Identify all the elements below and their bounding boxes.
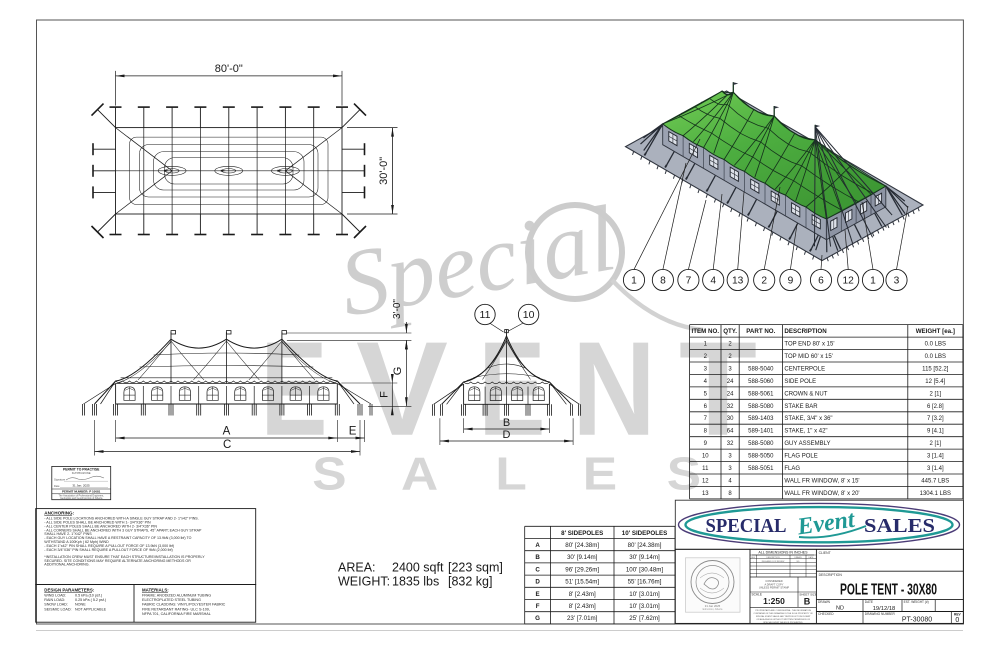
svg-text:0.5 kPa (10 psf.): 0.5 kPa (10 psf.)	[75, 594, 102, 598]
svg-text:0.25 kPa ( 5.2 psf.): 0.25 kPa ( 5.2 psf.)	[75, 598, 106, 602]
svg-text:Edmonton, Alberta: Edmonton, Alberta	[703, 608, 723, 611]
svg-text:DRAWN: DRAWN	[818, 600, 831, 604]
svg-text:SPECIAL EVENT SALES IS PROHIBI: SPECIAL EVENT SALES IS PROHIBITED.	[763, 621, 803, 624]
svg-text:PART NO.: PART NO.	[746, 328, 775, 335]
svg-text:G: G	[392, 367, 404, 376]
svg-text:DESCRIPTION: DESCRIPTION	[819, 573, 843, 577]
svg-text:115 [52.2]: 115 [52.2]	[922, 366, 949, 372]
svg-text:CENTERPOLE: CENTERPOLE	[784, 366, 825, 372]
svg-text:Signature: Signature	[54, 478, 66, 482]
svg-text:6: 6	[818, 276, 824, 287]
svg-text:ADDITIONAL ANCHORING.: ADDITIONAL ANCHORING.	[44, 563, 89, 567]
svg-text:3 [1.4]: 3 [1.4]	[927, 466, 944, 472]
svg-text:SALES: SALES	[864, 516, 935, 537]
svg-text:ND: ND	[836, 606, 844, 612]
svg-text:WIND LOAD:: WIND LOAD:	[44, 594, 66, 598]
svg-text:12: 12	[843, 276, 855, 287]
svg-text:SIDE POLE: SIDE POLE	[784, 379, 816, 385]
svg-text:30: 30	[727, 416, 734, 422]
svg-text:1304.1 LBS: 1304.1 LBS	[920, 491, 951, 497]
svg-text:8: 8	[660, 276, 666, 287]
svg-text:588-5050: 588-5050	[748, 454, 774, 460]
svg-text:32: 32	[727, 441, 734, 447]
svg-text:ITEM NO.: ITEM NO.	[692, 328, 720, 335]
svg-text:100' [30.48m]: 100' [30.48m]	[626, 566, 664, 573]
svg-text:NONE: NONE	[75, 603, 86, 607]
svg-text:V: V	[356, 315, 448, 464]
svg-text:0.0 LBS: 0.0 LBS	[925, 354, 946, 360]
svg-text:8' SIDEPOLES: 8' SIDEPOLES	[561, 530, 603, 537]
svg-text:10: 10	[523, 309, 535, 321]
svg-text:S: S	[312, 449, 346, 500]
svg-text:N: N	[572, 315, 656, 464]
svg-text:GUY ASSEMBLY: GUY ASSEMBLY	[784, 441, 830, 447]
svg-text:RAIN LOAD:: RAIN LOAD:	[44, 598, 65, 602]
svg-text:30'-0": 30'-0"	[378, 157, 390, 185]
svg-text:13: 13	[732, 276, 744, 287]
svg-text:CHECKED: CHECKED	[818, 612, 834, 616]
svg-text:STAKE, 3/4" x 36": STAKE, 3/4" x 36"	[784, 416, 832, 422]
svg-text:DESCRIPTION: DESCRIPTION	[784, 328, 827, 335]
svg-text:51' [15.54m]: 51' [15.54m]	[565, 579, 599, 586]
svg-text:E: E	[583, 449, 617, 500]
svg-text:NFPA 701, CALIFORNIA FIRE MARS: NFPA 701, CALIFORNIA FIRE MARSHAL	[142, 612, 211, 616]
svg-text:10: 10	[702, 454, 709, 460]
svg-text:G: G	[535, 615, 540, 622]
svg-text:80' [24.38m]: 80' [24.38m]	[565, 542, 599, 549]
svg-text:10' SIDEPOLES: 10' SIDEPOLES	[622, 530, 668, 537]
svg-text:CLIENT: CLIENT	[819, 551, 831, 555]
svg-text:WEIGHT:: WEIGHT:	[338, 575, 390, 589]
svg-text:8' [2.43m]: 8' [2.43m]	[569, 603, 596, 610]
svg-text:23' [7.01m]: 23' [7.01m]	[567, 615, 598, 622]
svg-text:PERMIT NUMBER: P 10081: PERMIT NUMBER: P 10081	[62, 490, 101, 494]
svg-text:FLAG: FLAG	[784, 466, 800, 472]
svg-text:2: 2	[761, 276, 767, 287]
svg-text:ELECTROPLATED STEEL TUBING: ELECTROPLATED STEEL TUBING	[142, 598, 201, 602]
svg-text:WALL FR WINDOW, 8' x 15': WALL FR WINDOW, 8' x 15'	[784, 479, 859, 485]
svg-text:A: A	[535, 542, 540, 549]
svg-text:19/12/18: 19/12/18	[873, 606, 896, 612]
svg-text:3 [1.4]: 3 [1.4]	[927, 454, 944, 460]
svg-text:3: 3	[894, 276, 900, 287]
svg-text:1: 1	[870, 276, 876, 287]
svg-text:FABRIC CLADDING: VINYL/POLYEST: FABRIC CLADDING: VINYL/POLYESTER FABRIC	[142, 603, 226, 607]
svg-text:C: C	[223, 439, 231, 451]
svg-text:1: 1	[631, 276, 637, 287]
svg-text:12: 12	[702, 479, 709, 485]
svg-text:STAKE, 1" x 42": STAKE, 1" x 42"	[784, 429, 827, 435]
svg-text:SNOW LOAD:: SNOW LOAD:	[44, 603, 68, 607]
svg-text:31 Jan. 2025: 31 Jan. 2025	[72, 484, 90, 488]
svg-text:588-5051: 588-5051	[748, 466, 774, 472]
svg-text:Date: Date	[54, 484, 60, 488]
svg-text:[223 sqm]: [223 sqm]	[448, 561, 503, 575]
svg-text:588-5060: 588-5060	[748, 379, 774, 385]
svg-text:A: A	[223, 426, 231, 438]
svg-text:9: 9	[788, 276, 794, 287]
svg-text:DRAWN: DRAWN	[794, 556, 802, 559]
svg-text:CONTAINED IN THIS DRAWING IS T: CONTAINED IN THIS DRAWING IS THE SOLE PR…	[754, 612, 814, 615]
svg-text:D: D	[503, 429, 511, 441]
svg-text:80' [24.38m]: 80' [24.38m]	[628, 542, 662, 549]
svg-text:588-5080: 588-5080	[748, 441, 774, 447]
svg-text:4: 4	[710, 276, 716, 287]
svg-text:KLTP8IUZONE: KLTP8IUZONE	[72, 471, 91, 475]
svg-text:E: E	[349, 426, 357, 438]
svg-text:WALL FR WINDOW, 8' x 20': WALL FR WINDOW, 8' x 20'	[784, 491, 859, 497]
svg-text:588-5061: 588-5061	[748, 391, 774, 397]
svg-text:B: B	[503, 417, 510, 429]
svg-text:L: L	[495, 449, 526, 500]
svg-text:RELEASED FOR REVIEW: RELEASED FOR REVIEW	[762, 560, 785, 563]
svg-text:80'-0": 80'-0"	[215, 63, 243, 75]
svg-text:7: 7	[686, 276, 692, 287]
svg-text:A: A	[401, 449, 438, 500]
svg-text:2400 sqft: 2400 sqft	[392, 561, 444, 575]
svg-text:FIRE RETARDANT RATING- ULC S-1: FIRE RETARDANT RATING- ULC S-109,	[142, 607, 210, 611]
svg-text:30' [9.14m]: 30' [9.14m]	[567, 554, 598, 561]
svg-text:0: 0	[955, 617, 959, 624]
svg-text:B: B	[535, 554, 540, 561]
svg-text:REV: REV	[954, 612, 961, 616]
svg-text:TOP END 80' x 15': TOP END 80' x 15'	[784, 342, 834, 348]
svg-text:TOP MID 60' x 15': TOP MID 60' x 15'	[784, 354, 832, 360]
svg-text:10' [3.01m]: 10' [3.01m]	[629, 591, 660, 598]
svg-text:12 [5.4]: 12 [5.4]	[925, 379, 945, 385]
svg-text:13: 13	[702, 491, 709, 497]
svg-text:CROWN & NUT: CROWN & NUT	[784, 391, 827, 397]
svg-text:0.0 LBS: 0.0 LBS	[925, 342, 946, 348]
svg-text:24: 24	[727, 379, 734, 385]
svg-text:445.7 LBS: 445.7 LBS	[921, 479, 949, 485]
svg-text:UNLESS PERMIT STAMP: UNLESS PERMIT STAMP	[759, 586, 790, 590]
svg-text:96' [29.26m]: 96' [29.26m]	[565, 566, 599, 573]
svg-text:SCALE: SCALE	[752, 593, 762, 597]
svg-text:64: 64	[727, 429, 734, 435]
svg-text:EST. WEIGHT (#): EST. WEIGHT (#)	[904, 600, 929, 604]
svg-text:Geologists and Geophysicists o: Geologists and Geophysicists of Alberta	[60, 497, 103, 500]
svg-text:SEISMIC LOAD:: SEISMIC LOAD:	[44, 607, 71, 611]
svg-text:DESIGN PARAMETERS:: DESIGN PARAMETERS:	[44, 588, 94, 593]
svg-text:7 [3.2]: 7 [3.2]	[927, 416, 944, 422]
svg-text:32: 32	[727, 404, 734, 410]
svg-text:588-5080: 588-5080	[748, 404, 774, 410]
svg-text:DRAWING NUMBER: DRAWING NUMBER	[865, 612, 896, 616]
svg-text:10' [3.01m]: 10' [3.01m]	[629, 603, 660, 610]
svg-text:1835 lbs: 1835 lbs	[392, 575, 439, 589]
svg-text:11: 11	[480, 309, 491, 321]
svg-text:WEIGHT [ea.]: WEIGHT [ea.]	[916, 328, 955, 335]
svg-text:FLAG POLE: FLAG POLE	[784, 454, 817, 460]
svg-text:SPECIAL EVENT SALES. ANY REPRO: SPECIAL EVENT SALES. ANY REPRODUCTION IN…	[756, 615, 811, 618]
svg-text:PROPRIETARY AND CONFIDENTIAL.: PROPRIETARY AND CONFIDENTIAL. THE INFORM…	[755, 609, 811, 612]
svg-text:DESCRIPTION: DESCRIPTION	[767, 557, 781, 559]
svg-text:8' [2.43m]: 8' [2.43m]	[569, 591, 596, 598]
svg-text:589-1401: 589-1401	[748, 429, 774, 435]
svg-text:F: F	[536, 603, 540, 610]
svg-text:D: D	[535, 579, 540, 586]
svg-text:ANCHORING:: ANCHORING:	[44, 511, 74, 516]
svg-text:DATE: DATE	[865, 600, 873, 604]
svg-text:9 [4.1]: 9 [4.1]	[927, 429, 944, 435]
svg-text:STAKE BAR: STAKE BAR	[784, 404, 818, 410]
svg-text:6 [2.8]: 6 [2.8]	[927, 404, 944, 410]
svg-text:F: F	[378, 391, 390, 398]
svg-text:ALL DIMENSIONS IN INCHES: ALL DIMENSIONS IN INCHES	[758, 551, 808, 555]
svg-text:MATERIALS:: MATERIALS:	[142, 588, 169, 593]
svg-text:2 [1]: 2 [1]	[929, 441, 941, 447]
svg-text:588-5040: 588-5040	[748, 366, 774, 372]
svg-text:[832 kg]: [832 kg]	[448, 575, 492, 589]
svg-text:3'-0": 3'-0"	[392, 299, 403, 319]
svg-text:DATE: DATE	[809, 556, 815, 559]
svg-text:24: 24	[727, 391, 734, 397]
svg-text:SPECIAL: SPECIAL	[706, 516, 787, 537]
svg-text:PT-30080: PT-30080	[902, 616, 932, 623]
svg-text:NOT APPLICABLE: NOT APPLICABLE	[75, 607, 107, 611]
svg-text:2 [1]: 2 [1]	[929, 391, 941, 397]
svg-text:POLE TENT - 30X80: POLE TENT - 30X80	[840, 582, 937, 599]
svg-text:30' [9.14m]: 30' [9.14m]	[629, 554, 660, 561]
svg-text:589-1403: 589-1403	[748, 416, 774, 422]
svg-text:11: 11	[702, 466, 709, 472]
svg-text:FRAME: ANODIZED ALUMINUM TUBIN: FRAME: ANODIZED ALUMINUM TUBING	[142, 594, 211, 598]
svg-text:1:250: 1:250	[763, 596, 785, 606]
svg-text:B: B	[804, 597, 811, 607]
svg-text:- EACH 3/4"X36" PIN SHALL REQU: - EACH 3/4"X36" PIN SHALL REQUIRE A PULL…	[44, 548, 172, 552]
svg-text:AREA:: AREA:	[338, 561, 376, 575]
svg-text:QTY.: QTY.	[723, 328, 737, 335]
svg-text:25' [7.62m]: 25' [7.62m]	[629, 615, 660, 622]
svg-text:C: C	[535, 566, 540, 573]
svg-text:E: E	[536, 591, 540, 598]
svg-text:OR AS A WHOLE WITHOUT WRITTEN: OR AS A WHOLE WITHOUT WRITTEN PERMISSION…	[756, 618, 810, 621]
svg-text:55' [16.76m]: 55' [16.76m]	[628, 579, 662, 586]
